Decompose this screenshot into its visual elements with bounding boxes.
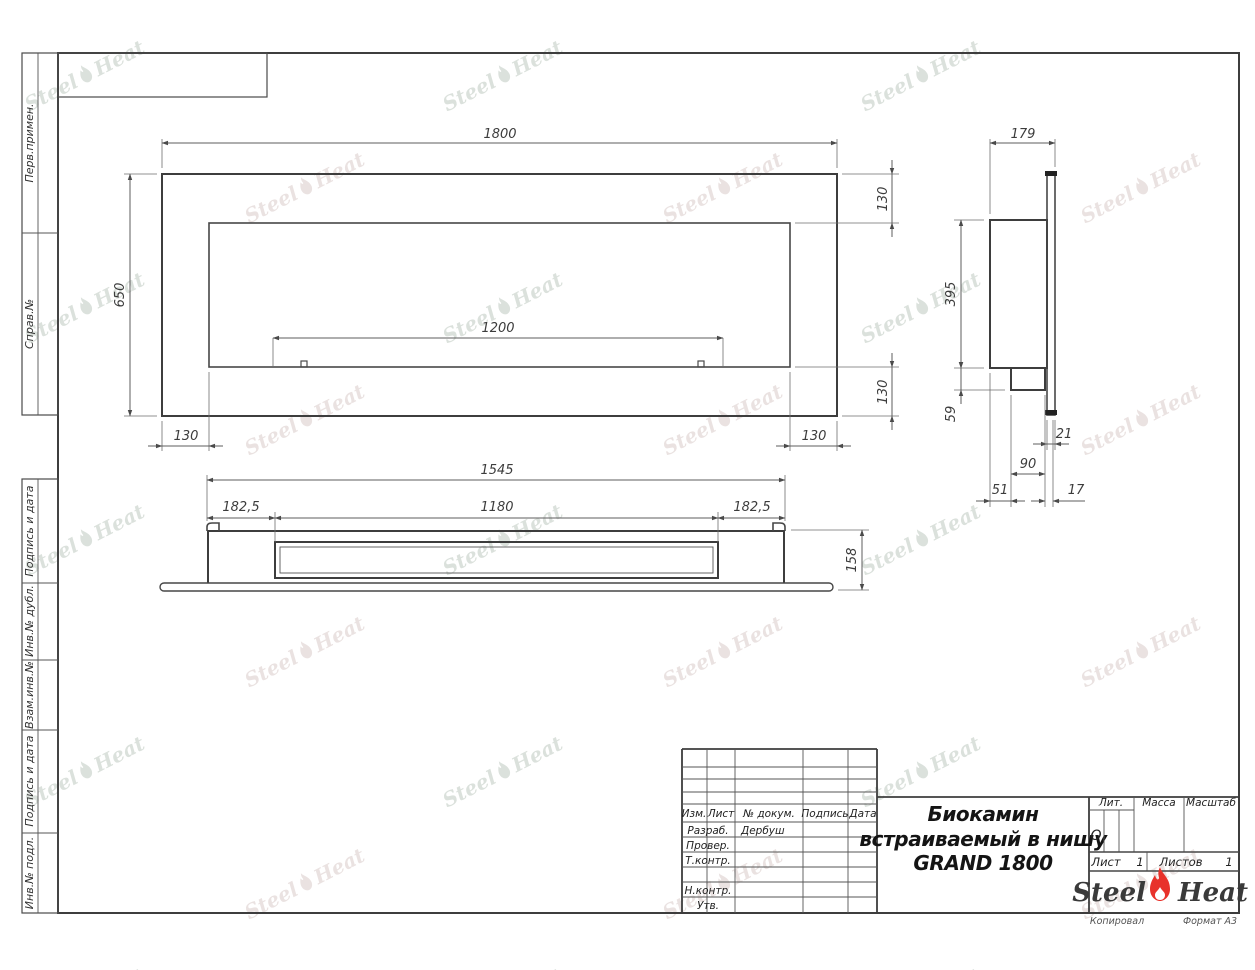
tb-col-dokum: № докум. <box>742 808 795 820</box>
dim-front-margin-right: 130 <box>802 429 827 444</box>
tb-sheet-label: Лист <box>1090 855 1120 869</box>
tb-lit-label: Лит. <box>1098 797 1123 809</box>
tb-row-prover: Провер. <box>686 840 730 852</box>
tb-row-utv: Утв. <box>697 900 719 912</box>
strip-label-vzam-inv: Взам.инв.№ <box>23 661 36 729</box>
logo-heat: Heat <box>1177 878 1248 908</box>
dim-bottom-depth: 158 <box>845 548 860 573</box>
tb-scale-label: Масштаб <box>1186 797 1236 809</box>
strip-label-sprav-no: Справ.№ <box>23 299 36 349</box>
dim-side-tray-width: 90 <box>1020 457 1037 472</box>
tb-row-tkontr: Т.контр. <box>685 855 731 867</box>
panel-top-cap <box>1045 171 1057 176</box>
tb-col-data: Дата <box>848 808 876 820</box>
tb-razrab-name: Дербуш <box>740 825 785 837</box>
copied-label: Копировал <box>1090 916 1144 927</box>
strip-label-podpis-data-1: Подпись и дата <box>23 485 36 576</box>
dim-side-depth: 179 <box>1011 127 1036 142</box>
tb-sheets-value: 1 <box>1225 855 1232 869</box>
dim-side-back-offset: 51 <box>992 483 1009 498</box>
tb-row-nkontr: Н.контр. <box>685 885 732 897</box>
dim-front-opening-width: 1200 <box>481 321 514 336</box>
dim-front-height: 650 <box>113 283 128 308</box>
dim-side-panel-thickness: 21 <box>1056 427 1073 442</box>
logo-steel: Steel <box>1072 878 1146 908</box>
dim-bottom-margin-left: 182,5 <box>222 500 259 515</box>
dim-bottom-body-width: 1545 <box>480 463 513 478</box>
drawing-sheet: Steel Heat Steel Heat Перв.примен. Справ… <box>0 0 1255 970</box>
dim-front-margin-bottom: 130 <box>876 380 891 405</box>
strip-label-inv-podl: Инв.№ подл. <box>23 837 36 909</box>
tb-sheets-label: Листов <box>1159 855 1203 869</box>
drawing-canvas: Steel Heat Steel Heat Перв.примен. Справ… <box>0 0 1255 970</box>
tb-col-izm: Изм. <box>682 808 707 820</box>
dim-side-gap: 17 <box>1068 483 1085 498</box>
tb-sheet-value: 1 <box>1136 855 1143 869</box>
strip-label-podpis-data-2: Подпись и дата <box>23 735 36 826</box>
format-label: Формат А3 <box>1183 916 1237 927</box>
tb-col-podpis: Подпись <box>801 808 848 820</box>
strip-label-inv-dubl: Инв.№ дубл. <box>23 585 36 657</box>
dim-front-margin-top: 130 <box>876 187 891 212</box>
tb-row-razrab: Разраб. <box>687 825 728 837</box>
tb-col-list: Лист <box>707 808 735 820</box>
panel-bottom-cap <box>1045 410 1057 415</box>
tb-lit-value: О <box>1090 828 1101 844</box>
dim-bottom-burner-width: 1180 <box>480 500 513 515</box>
dim-front-width: 1800 <box>483 127 516 142</box>
dim-side-tray-depth: 59 <box>944 406 959 423</box>
doc-title-line3: GRAND 1800 <box>913 851 1053 875</box>
strip-label-perv-primen: Перв.примен. <box>23 103 36 182</box>
dim-bottom-margin-right: 182,5 <box>733 500 770 515</box>
dim-side-height: 395 <box>944 282 959 307</box>
doc-title-line1: Биокамин <box>927 802 1039 826</box>
doc-title-line2: встраиваемый в нишу <box>859 827 1108 851</box>
tb-mass-label: Масса <box>1142 797 1175 809</box>
dim-front-margin-left: 130 <box>174 429 199 444</box>
